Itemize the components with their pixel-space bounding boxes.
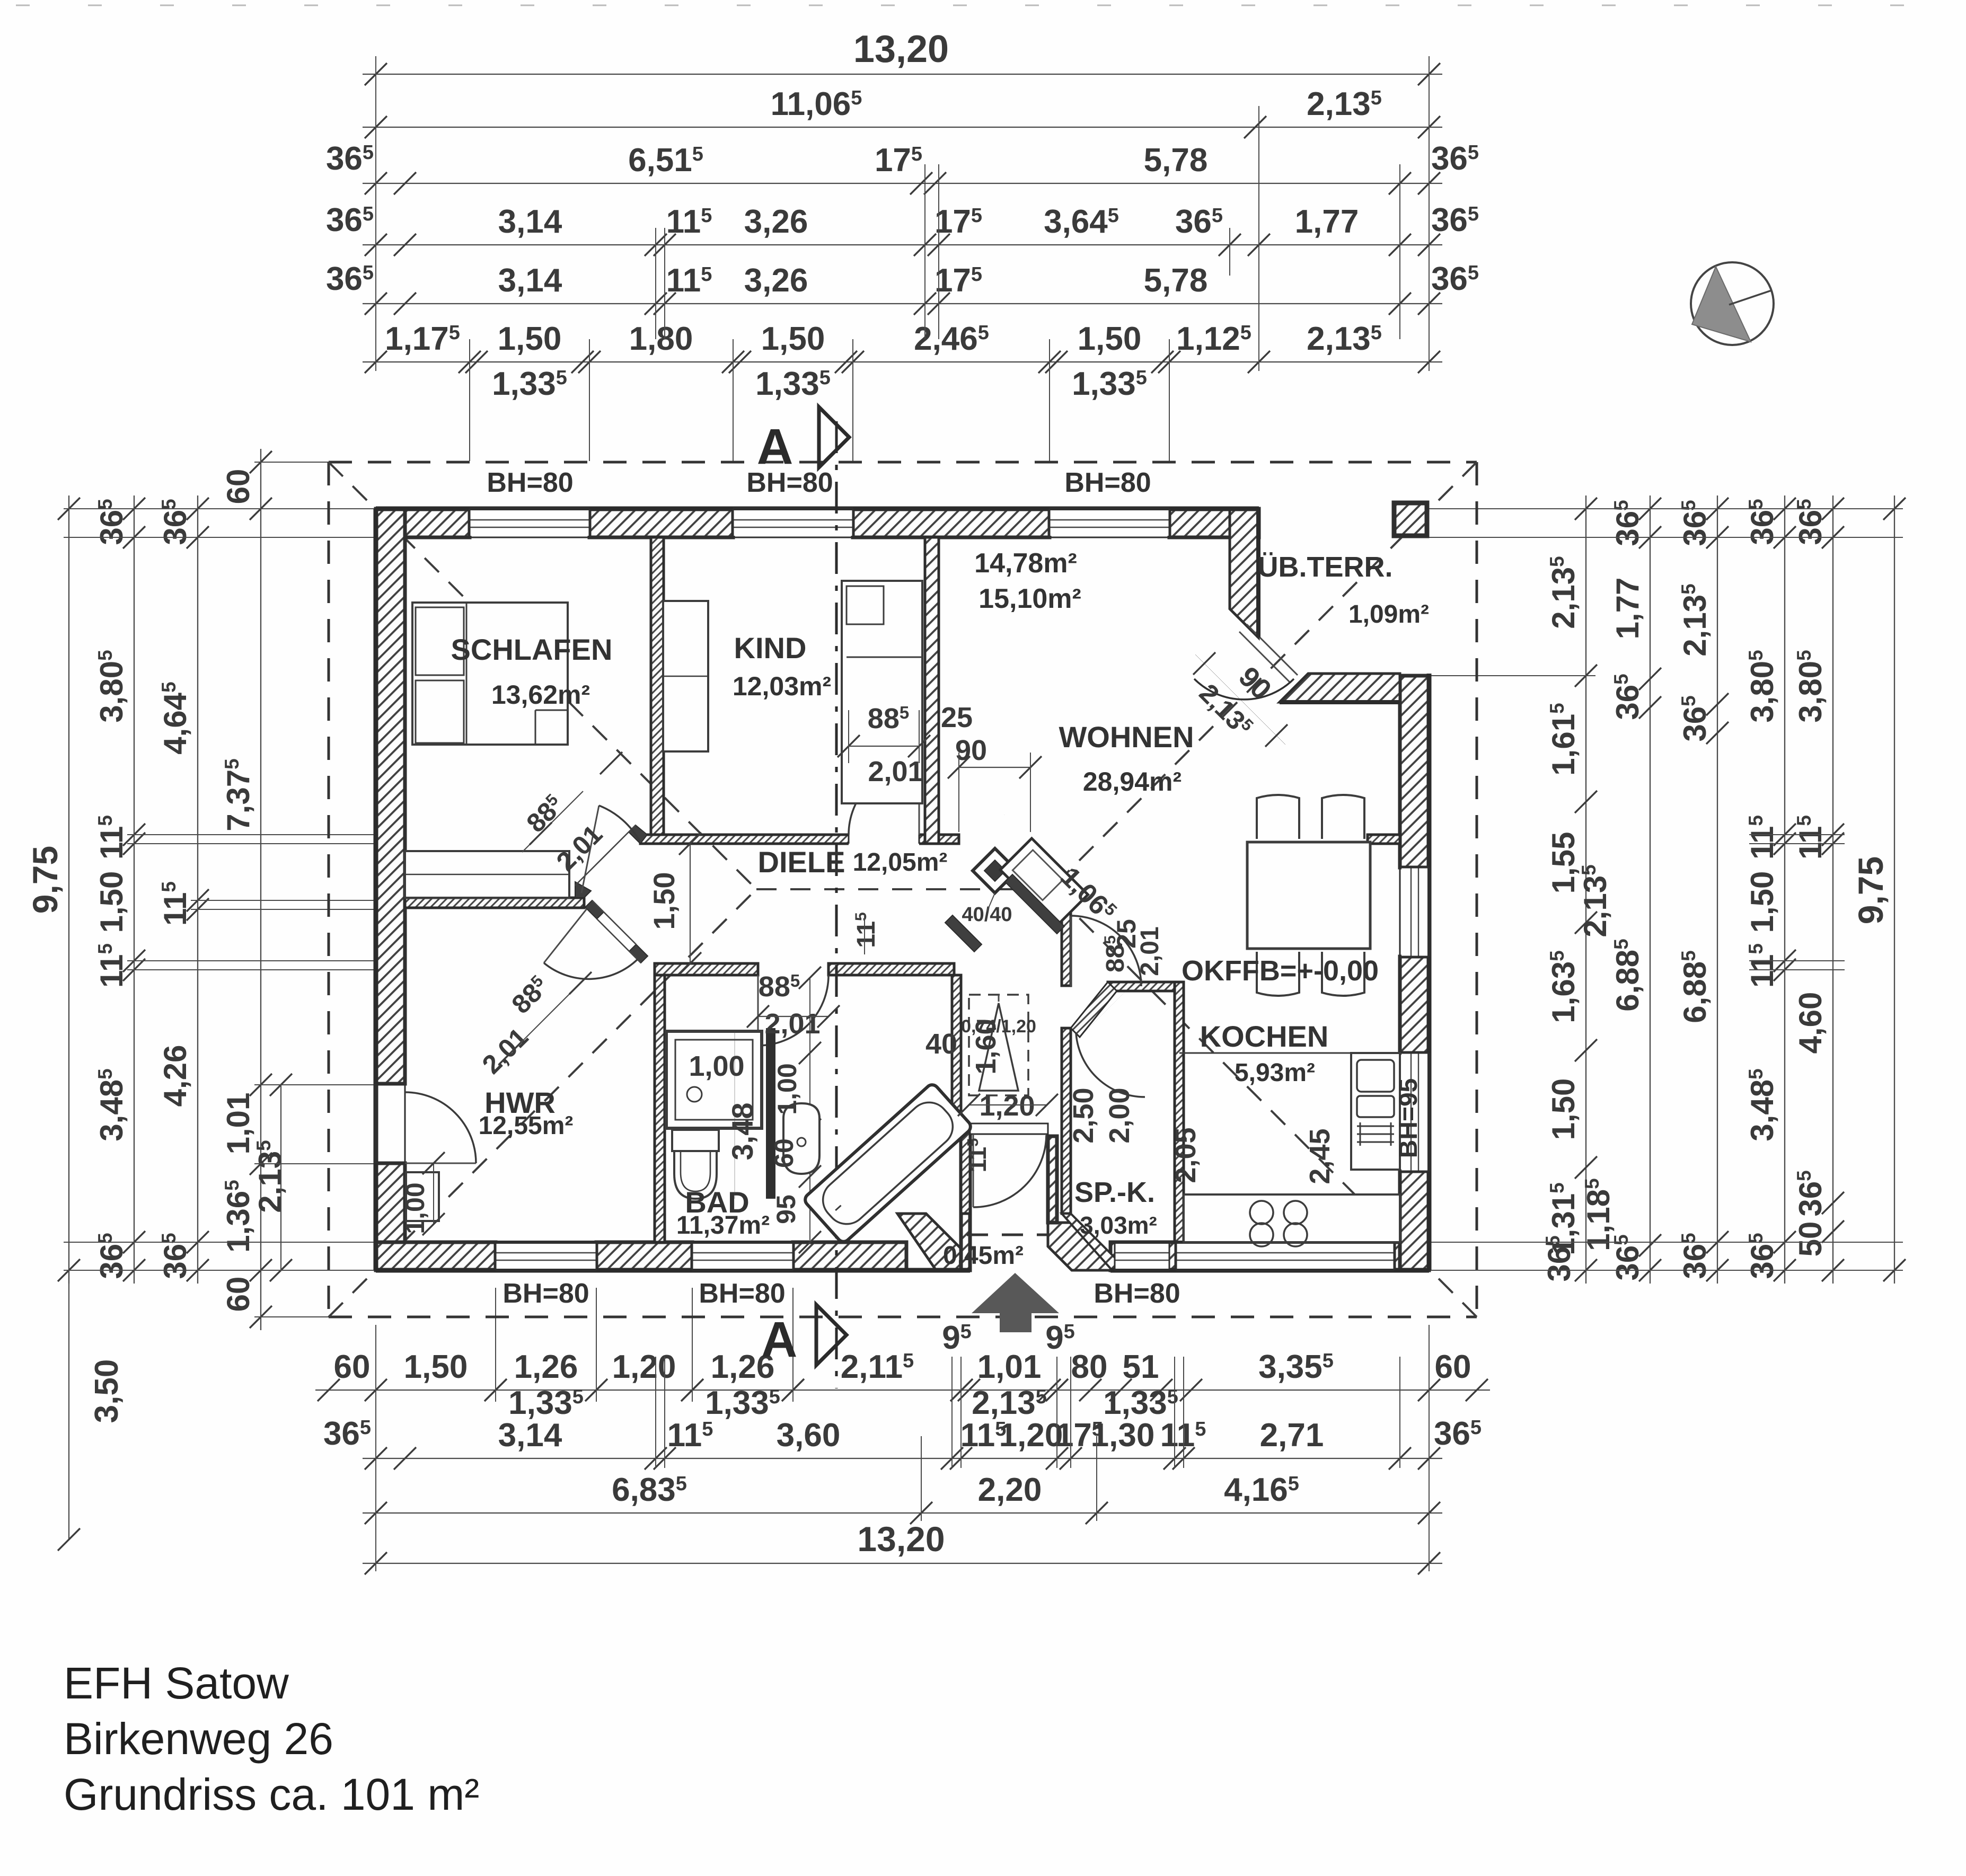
svg-text:3,26: 3,26 [744, 203, 808, 240]
svg-text:13,62m²: 13,62m² [491, 680, 590, 710]
svg-text:WOHNEN: WOHNEN [1059, 720, 1194, 754]
svg-text:A: A [757, 419, 794, 475]
svg-text:3,805: 3,805 [1793, 650, 1828, 722]
svg-text:6,515: 6,515 [628, 142, 703, 179]
svg-text:50: 50 [1793, 1222, 1828, 1257]
svg-text:DIELE: DIELE [758, 845, 845, 879]
svg-text:1,50: 1,50 [647, 872, 681, 930]
svg-text:51: 51 [1123, 1349, 1159, 1385]
svg-text:28,94m²: 28,94m² [1083, 767, 1182, 797]
svg-text:2,135: 2,135 [1577, 864, 1613, 937]
svg-text:1,175: 1,175 [385, 321, 460, 357]
svg-text:12,05m²: 12,05m² [853, 848, 948, 877]
svg-text:3,48: 3,48 [726, 1103, 759, 1161]
svg-text:1,50: 1,50 [498, 321, 562, 357]
svg-text:1,50: 1,50 [94, 871, 129, 933]
svg-text:3,645: 3,645 [1044, 203, 1119, 240]
svg-text:12,55m²: 12,55m² [479, 1112, 574, 1140]
svg-text:6,835: 6,835 [612, 1472, 687, 1508]
svg-text:3,485: 3,485 [1744, 1068, 1780, 1141]
svg-text:2,135: 2,135 [1307, 321, 1382, 357]
svg-text:SP.-K.: SP.-K. [1074, 1176, 1155, 1208]
svg-text:13,20: 13,20 [853, 28, 949, 70]
svg-text:60: 60 [769, 1138, 799, 1168]
svg-text:1,335: 1,335 [492, 366, 567, 402]
svg-text:3,03m²: 3,03m² [1080, 1211, 1157, 1239]
svg-text:Grundriss ca. 101 m²: Grundriss ca. 101 m² [64, 1769, 479, 1819]
svg-text:2,20: 2,20 [978, 1472, 1042, 1508]
svg-text:BH=80: BH=80 [1064, 467, 1151, 498]
svg-text:ÜB.TERR.: ÜB.TERR. [1258, 551, 1393, 583]
svg-text:95: 95 [771, 1194, 801, 1224]
svg-text:1,50: 1,50 [1744, 871, 1780, 933]
svg-text:2,01: 2,01 [764, 1008, 820, 1040]
svg-text:3,14: 3,14 [498, 203, 562, 240]
svg-text:9,75: 9,75 [25, 846, 65, 914]
svg-text:BH=80: BH=80 [502, 1278, 589, 1309]
svg-text:3,14: 3,14 [498, 262, 562, 299]
svg-text:1,50: 1,50 [404, 1349, 468, 1385]
svg-text:1,77: 1,77 [1610, 578, 1645, 640]
svg-text:40/40: 40/40 [962, 904, 1012, 926]
svg-text:5,78: 5,78 [1144, 142, 1208, 179]
svg-text:13,20: 13,20 [857, 1519, 945, 1559]
svg-text:2,50: 2,50 [1068, 1087, 1099, 1143]
svg-text:3,805: 3,805 [94, 650, 129, 722]
svg-text:1,50: 1,50 [1078, 321, 1142, 357]
svg-text:90: 90 [955, 735, 987, 766]
svg-text:1,335: 1,335 [705, 1385, 780, 1421]
svg-text:1,20: 1,20 [979, 1090, 1035, 1122]
svg-text:OKFFB=+-0,00: OKFFB=+-0,00 [1182, 955, 1379, 987]
svg-text:1,09m²: 1,09m² [1348, 600, 1429, 629]
svg-text:1,20: 1,20 [999, 1417, 1063, 1454]
svg-text:1,335: 1,335 [755, 366, 831, 402]
svg-text:6,885: 6,885 [1610, 939, 1645, 1011]
svg-text:80: 80 [1071, 1349, 1108, 1385]
svg-text:1,01: 1,01 [977, 1349, 1042, 1385]
svg-text:1,26: 1,26 [514, 1349, 578, 1385]
svg-text:60: 60 [221, 1277, 256, 1312]
svg-text:4,60: 4,60 [1793, 992, 1828, 1054]
svg-text:25: 25 [1112, 919, 1141, 949]
svg-text:1,77: 1,77 [1295, 203, 1359, 240]
svg-text:2,01: 2,01 [868, 756, 923, 787]
svg-text:BH=80: BH=80 [487, 467, 573, 498]
svg-text:SCHLAFEN: SCHLAFEN [451, 633, 613, 666]
svg-text:BH=80: BH=80 [699, 1278, 785, 1309]
svg-text:4,26: 4,26 [157, 1045, 193, 1107]
svg-text:3,26: 3,26 [744, 262, 808, 299]
svg-text:2,45: 2,45 [1304, 1128, 1336, 1184]
svg-text:BH=80: BH=80 [746, 467, 833, 498]
svg-text:12,03m²: 12,03m² [733, 671, 831, 701]
svg-text:2,135: 2,135 [972, 1385, 1047, 1421]
svg-text:1,00: 1,00 [400, 1182, 430, 1234]
svg-text:2,135: 2,135 [252, 1140, 288, 1213]
svg-text:1,80: 1,80 [629, 321, 693, 357]
svg-text:25: 25 [941, 702, 973, 733]
svg-text:EFH Satow: EFH Satow [64, 1658, 289, 1708]
svg-text:4,645: 4,645 [157, 682, 193, 754]
svg-text:1,615: 1,615 [1546, 703, 1581, 775]
svg-text:3,14: 3,14 [498, 1417, 562, 1454]
svg-text:KOCHEN: KOCHEN [1200, 1020, 1329, 1053]
svg-text:5,78: 5,78 [1144, 262, 1208, 299]
svg-text:11,065: 11,065 [771, 86, 862, 122]
svg-text:1,55: 1,55 [1546, 832, 1581, 894]
svg-text:5,93m²: 5,93m² [1235, 1059, 1315, 1087]
svg-text:Birkenweg 26: Birkenweg 26 [64, 1714, 333, 1764]
svg-text:40: 40 [925, 1028, 957, 1060]
svg-text:60: 60 [221, 469, 256, 505]
svg-text:1,01: 1,01 [221, 1093, 256, 1155]
svg-text:1,50: 1,50 [761, 321, 825, 357]
svg-text:2,135: 2,135 [1307, 86, 1382, 122]
svg-text:11,37m²: 11,37m² [676, 1211, 770, 1240]
svg-text:1,20: 1,20 [612, 1349, 676, 1385]
svg-text:1,125: 1,125 [1176, 321, 1251, 357]
svg-text:60: 60 [1435, 1349, 1471, 1385]
svg-text:1,00: 1,00 [689, 1050, 744, 1082]
svg-text:1,335: 1,335 [508, 1385, 584, 1421]
svg-text:KIND: KIND [734, 631, 807, 665]
svg-text:1,30: 1,30 [1091, 1417, 1155, 1454]
svg-text:3,485: 3,485 [94, 1068, 129, 1141]
svg-text:2,00: 2,00 [1104, 1087, 1135, 1143]
svg-text:1,335: 1,335 [1072, 366, 1147, 402]
svg-text:BH=95: BH=95 [1395, 1078, 1423, 1158]
svg-text:1,335: 1,335 [1103, 1385, 1178, 1421]
svg-text:3,805: 3,805 [1744, 650, 1780, 722]
svg-text:2,135: 2,135 [1677, 583, 1713, 656]
svg-text:2,71: 2,71 [1260, 1417, 1324, 1454]
svg-text:1,00: 1,00 [772, 1063, 802, 1114]
svg-text:1,635: 1,635 [1546, 950, 1581, 1023]
svg-text:BH=80: BH=80 [1094, 1278, 1180, 1309]
svg-text:3,355: 3,355 [1258, 1349, 1334, 1385]
svg-text:1,60: 1,60 [970, 1019, 1002, 1074]
svg-text:3,50: 3,50 [89, 1359, 125, 1423]
svg-text:60: 60 [334, 1349, 371, 1385]
svg-text:15,10m²: 15,10m² [978, 583, 1081, 614]
svg-text:6,885: 6,885 [1677, 950, 1713, 1023]
svg-text:7,375: 7,375 [221, 758, 256, 831]
svg-text:0,45m²: 0,45m² [943, 1242, 1024, 1270]
svg-text:2,135: 2,135 [1546, 556, 1581, 629]
svg-text:4,165: 4,165 [1224, 1472, 1299, 1508]
svg-text:A: A [761, 1312, 798, 1368]
svg-text:9,75: 9,75 [1851, 856, 1890, 924]
svg-text:3,60: 3,60 [777, 1417, 841, 1454]
svg-text:1,50: 1,50 [1546, 1078, 1581, 1140]
svg-text:2,05: 2,05 [1170, 1127, 1202, 1183]
svg-text:14,78m²: 14,78m² [974, 548, 1077, 579]
